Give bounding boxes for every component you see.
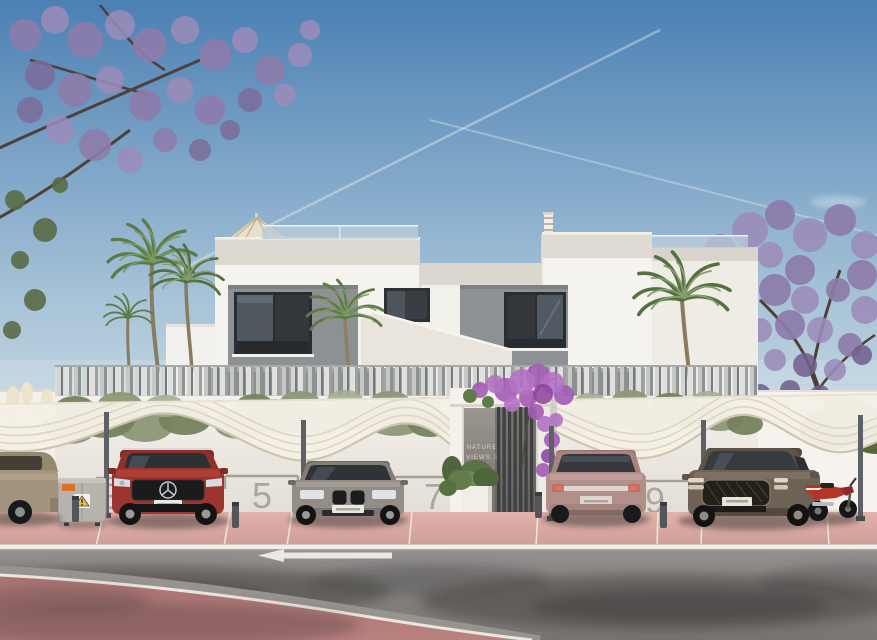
entrance-sign-line2: VIEWS 3 xyxy=(466,454,498,461)
utility-box xyxy=(56,478,108,529)
entrance-sign-line1: NATURE xyxy=(467,444,498,451)
parking-number-5: 5 xyxy=(252,475,272,516)
scene-canvas: 3 5 7 9 NATURE VIEWS 3 xyxy=(0,0,877,640)
villa-render-scene: 3 5 7 9 NATURE VIEWS 3 xyxy=(0,0,877,640)
orange-label xyxy=(62,484,75,491)
window-right xyxy=(502,292,568,351)
car-red-suv xyxy=(108,449,228,525)
parking-number-7: 7 xyxy=(424,476,444,517)
kidney-grille xyxy=(350,490,365,505)
portal-pillar-left xyxy=(450,388,464,522)
window-left xyxy=(232,292,314,357)
kidney-grille xyxy=(332,490,347,505)
car-grey-sedan xyxy=(288,461,408,525)
slat-privacy-fence xyxy=(55,365,757,397)
chimney xyxy=(543,212,554,234)
car-bronze-sedan xyxy=(682,448,820,527)
kerb-line xyxy=(0,545,877,549)
car-mauve-suv xyxy=(546,450,646,523)
kerb-shade xyxy=(0,544,877,545)
